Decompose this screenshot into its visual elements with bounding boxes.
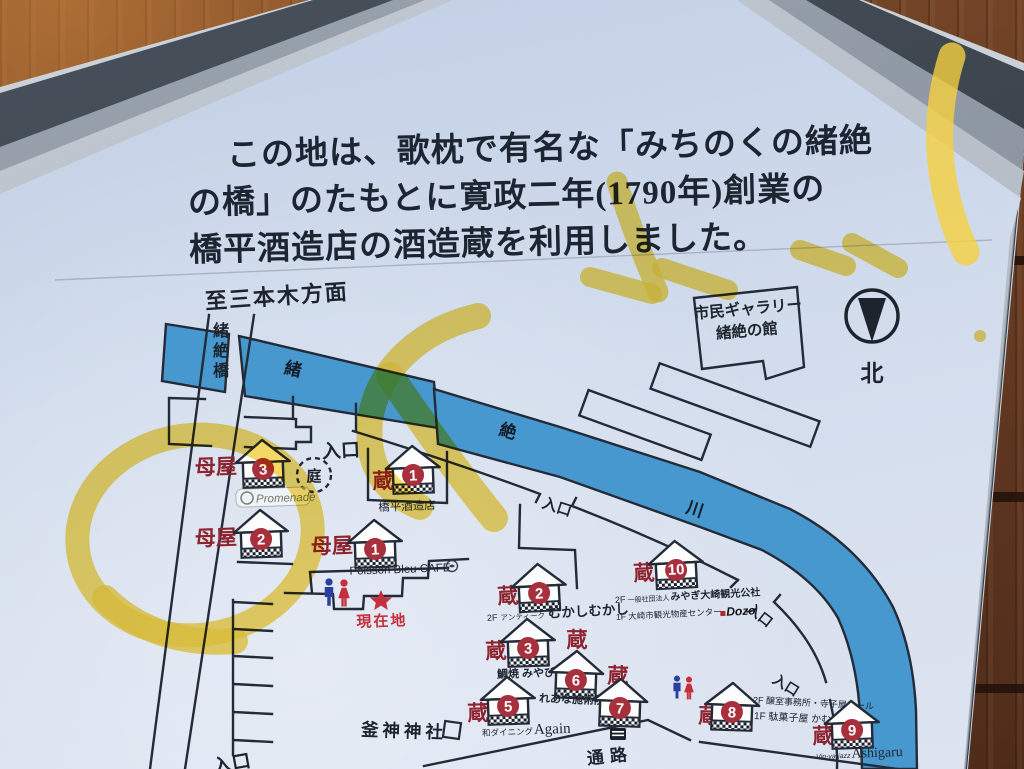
building-kura-2: 蔵 2 2Fアンティークむかしむかし bbox=[487, 563, 630, 624]
direction-label: 至三本木方面 bbox=[204, 279, 349, 314]
omoya2-plot-line bbox=[238, 562, 292, 564]
omoya-2-label: 母屋 bbox=[195, 526, 238, 550]
promenade-plaque: Promenade bbox=[236, 487, 316, 508]
kura-10-line2: 1F 大崎市観光物産センター bbox=[616, 606, 722, 622]
restroom-icons-west bbox=[325, 578, 350, 606]
promenade-label: Promenade bbox=[256, 492, 316, 506]
restroom-icons-east bbox=[673, 676, 693, 700]
man-icon bbox=[673, 676, 680, 699]
kura-6-number: 6 bbox=[571, 672, 580, 689]
omoya-3-label: 母屋 bbox=[195, 455, 238, 479]
plot-west-of-road bbox=[169, 398, 211, 446]
north-indicator: 北 bbox=[846, 290, 898, 386]
plot-hook bbox=[245, 417, 311, 449]
river-segment-upper bbox=[239, 336, 438, 428]
kura-5-number: 5 bbox=[504, 698, 513, 715]
omoya-2-number: 2 bbox=[257, 531, 266, 548]
entrance-1: 入口 bbox=[321, 439, 360, 463]
kura-2-number: 2 bbox=[535, 585, 544, 602]
kura-3-number: 3 bbox=[524, 640, 533, 657]
kura-9-label: 蔵 bbox=[812, 724, 834, 749]
shrine-marker: 釜神神社 bbox=[360, 719, 461, 742]
kura-9-number: 9 bbox=[848, 722, 857, 739]
kura-6-label: 蔵 bbox=[567, 628, 588, 652]
kura-9-name: Ashigaru bbox=[851, 745, 903, 762]
kura-10-number: 10 bbox=[667, 561, 685, 579]
omoya-1-label: 母屋 bbox=[311, 534, 354, 558]
building-omoya-1: 母屋 1 Poisson Bleu CAFE bbox=[311, 519, 458, 578]
kura-7-emblem-icon bbox=[610, 728, 626, 740]
north-arrow-icon bbox=[858, 298, 886, 342]
kura-10-line1-org: 一般社団法人 bbox=[627, 593, 669, 604]
north-label: 北 bbox=[861, 360, 884, 386]
bridge-char-3: 橋 bbox=[213, 361, 230, 380]
entrance-4: 入口 bbox=[770, 671, 802, 699]
kura-5-label: 蔵 bbox=[467, 701, 489, 726]
gallery-label-line2: 緒絶の館 bbox=[715, 318, 778, 342]
gallery-label-line1: 市民ギャラリー bbox=[693, 294, 803, 322]
kura-5-name: Again bbox=[534, 721, 572, 738]
current-location-star-icon bbox=[370, 590, 392, 610]
woman-icon bbox=[684, 677, 694, 700]
building-kura-3: 蔵 3 鯛焼 みやび bbox=[485, 618, 556, 681]
kura-8-number: 8 bbox=[727, 704, 736, 721]
photo-of-map-sign: この地は、歌枕で有名な「みちのくの緒絶 の橋」のたもとに寛政二年(1790年)創… bbox=[0, 0, 1024, 769]
passage-label: 通路 bbox=[586, 744, 634, 769]
dozo-logo: Dozo bbox=[720, 603, 756, 619]
entrance-2: 入口 bbox=[540, 495, 574, 520]
man-icon bbox=[325, 578, 334, 605]
kura-7-number: 7 bbox=[615, 700, 624, 717]
sign-panel-seam bbox=[55, 240, 992, 280]
garden-label: 庭 bbox=[306, 467, 322, 485]
kura-5-sub: 和ダイニング bbox=[482, 726, 534, 738]
omoya-1-number: 1 bbox=[371, 541, 380, 558]
kura-1-label: 蔵 bbox=[372, 469, 394, 494]
dozo-logo-text: Dozo bbox=[726, 603, 756, 619]
gallery-label: 市民ギャラリー 緒絶の館 bbox=[693, 294, 803, 342]
bridge-char-1: 緒 bbox=[213, 321, 229, 340]
bridge-label: 緒 絶 橋 bbox=[213, 321, 230, 380]
kura-2-sub: アンティーク bbox=[500, 611, 545, 622]
omoya-1-shop: Poisson Bleu CAFE bbox=[349, 562, 451, 578]
building-north-1 bbox=[651, 363, 820, 447]
kura-10-line1-prefix: 2F bbox=[615, 594, 627, 605]
building-omoya-2: 母屋 2 bbox=[195, 509, 289, 558]
current-location-label: 現在地 bbox=[356, 611, 408, 631]
kura-9-sub: Vin-ya-jazz bbox=[816, 753, 851, 761]
omoya-3-number: 3 bbox=[259, 461, 268, 478]
woman-icon bbox=[338, 579, 350, 606]
bridge-char-2: 絶 bbox=[213, 341, 229, 360]
kura-2-floor: 2F bbox=[487, 612, 499, 623]
kura-1-number: 1 bbox=[409, 467, 418, 484]
parking-comb bbox=[233, 600, 272, 755]
shrine-label: 釜神神社 bbox=[360, 719, 448, 742]
